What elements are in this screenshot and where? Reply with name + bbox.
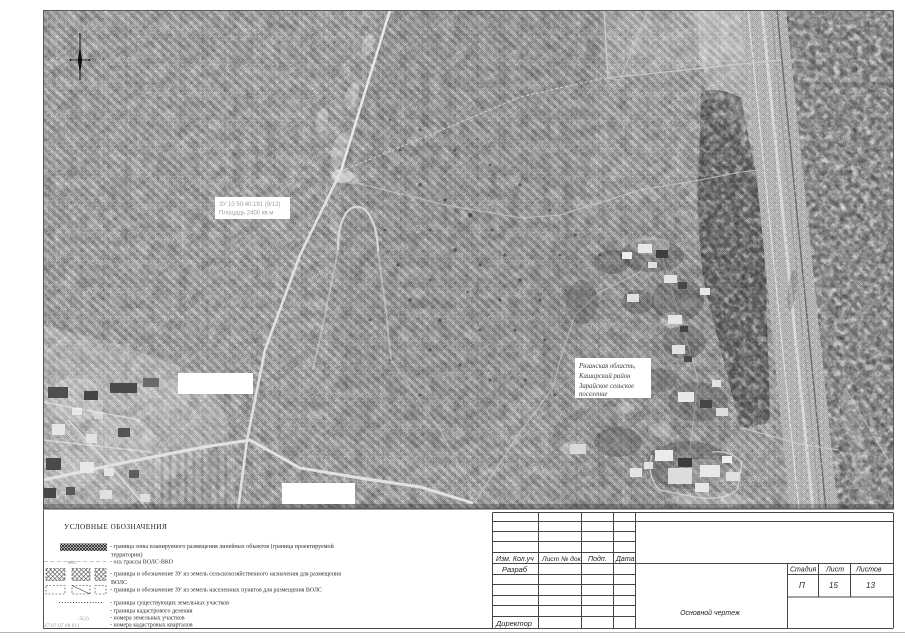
svg-text:15: 15	[829, 581, 838, 590]
svg-text:ур. Михалево: ур. Михалево	[504, 266, 543, 272]
svg-text:- границы существующих земель: - границы существующих земельных участко…	[110, 601, 229, 607]
svg-text:Директор: Директор	[495, 619, 532, 628]
svg-text:Каширский район: Каширский район	[578, 373, 631, 380]
svg-text:13: 13	[866, 581, 875, 590]
svg-text:Лист: Лист	[825, 567, 844, 574]
svg-text:- ось трассы ВОЛС-ВКО: - ось трассы ВОЛС-ВКО	[110, 560, 174, 566]
svg-text:ЗУ 10 50:40:191 (9/12): ЗУ 10 50:40:191 (9/12)	[219, 202, 280, 208]
svg-text:Подп.: Подп.	[588, 555, 607, 563]
svg-text:Зарайское сельское: Зарайское сельское	[579, 383, 634, 390]
svg-text:П: П	[799, 581, 805, 590]
svg-text:- границы кадастрового деления: - границы кадастрового деления	[110, 609, 193, 615]
svg-text:Изм. Кол.уч: Изм. Кол.уч	[496, 556, 534, 563]
svg-text:Разраб: Разраб	[502, 565, 528, 574]
svg-text:Основной чертеж: Основной чертеж	[680, 609, 741, 617]
svg-text:территории): территории)	[111, 552, 142, 559]
svg-text::5(2): :5(2)	[148, 364, 159, 370]
svg-text:волс: волс	[68, 560, 77, 565]
svg-text:ВОЛС: ВОЛС	[111, 580, 127, 586]
svg-text:- границы и обозначение ЗУ из: - границы и обозначение ЗУ из земель сел…	[110, 571, 341, 578]
svg-text:УСЛОВНЫЕ ОБОЗНАЧЕНИЯ: УСЛОВНЫЕ ОБОЗНАЧЕНИЯ	[64, 522, 167, 531]
svg-text:Стадия: Стадия	[790, 566, 816, 574]
svg-text:- номера земельных участков: - номера земельных участков	[110, 616, 185, 622]
svg-text:поселение: поселение	[579, 391, 608, 398]
svg-text:- граница зоны планируемого ра: - граница зоны планируемого размещения л…	[110, 543, 335, 550]
svg-text:Листов: Листов	[855, 567, 882, 574]
svg-text:Дата: Дата	[615, 556, 635, 563]
svg-text:- номера кадастровых кварталов: - номера кадастровых кварталов	[110, 623, 193, 629]
svg-text::5(2): :5(2)	[58, 346, 69, 352]
svg-text:Рязанская область,: Рязанская область,	[578, 363, 636, 370]
svg-text:- границы и обозначение ЗУ из: - границы и обозначение ЗУ из земель нас…	[110, 587, 322, 594]
svg-text::5(2): :5(2)	[78, 615, 89, 622]
svg-text:Лист № док.: Лист № док.	[541, 555, 583, 563]
svg-text:Площадь 2400 кв.м: Площадь 2400 кв.м	[219, 211, 273, 217]
